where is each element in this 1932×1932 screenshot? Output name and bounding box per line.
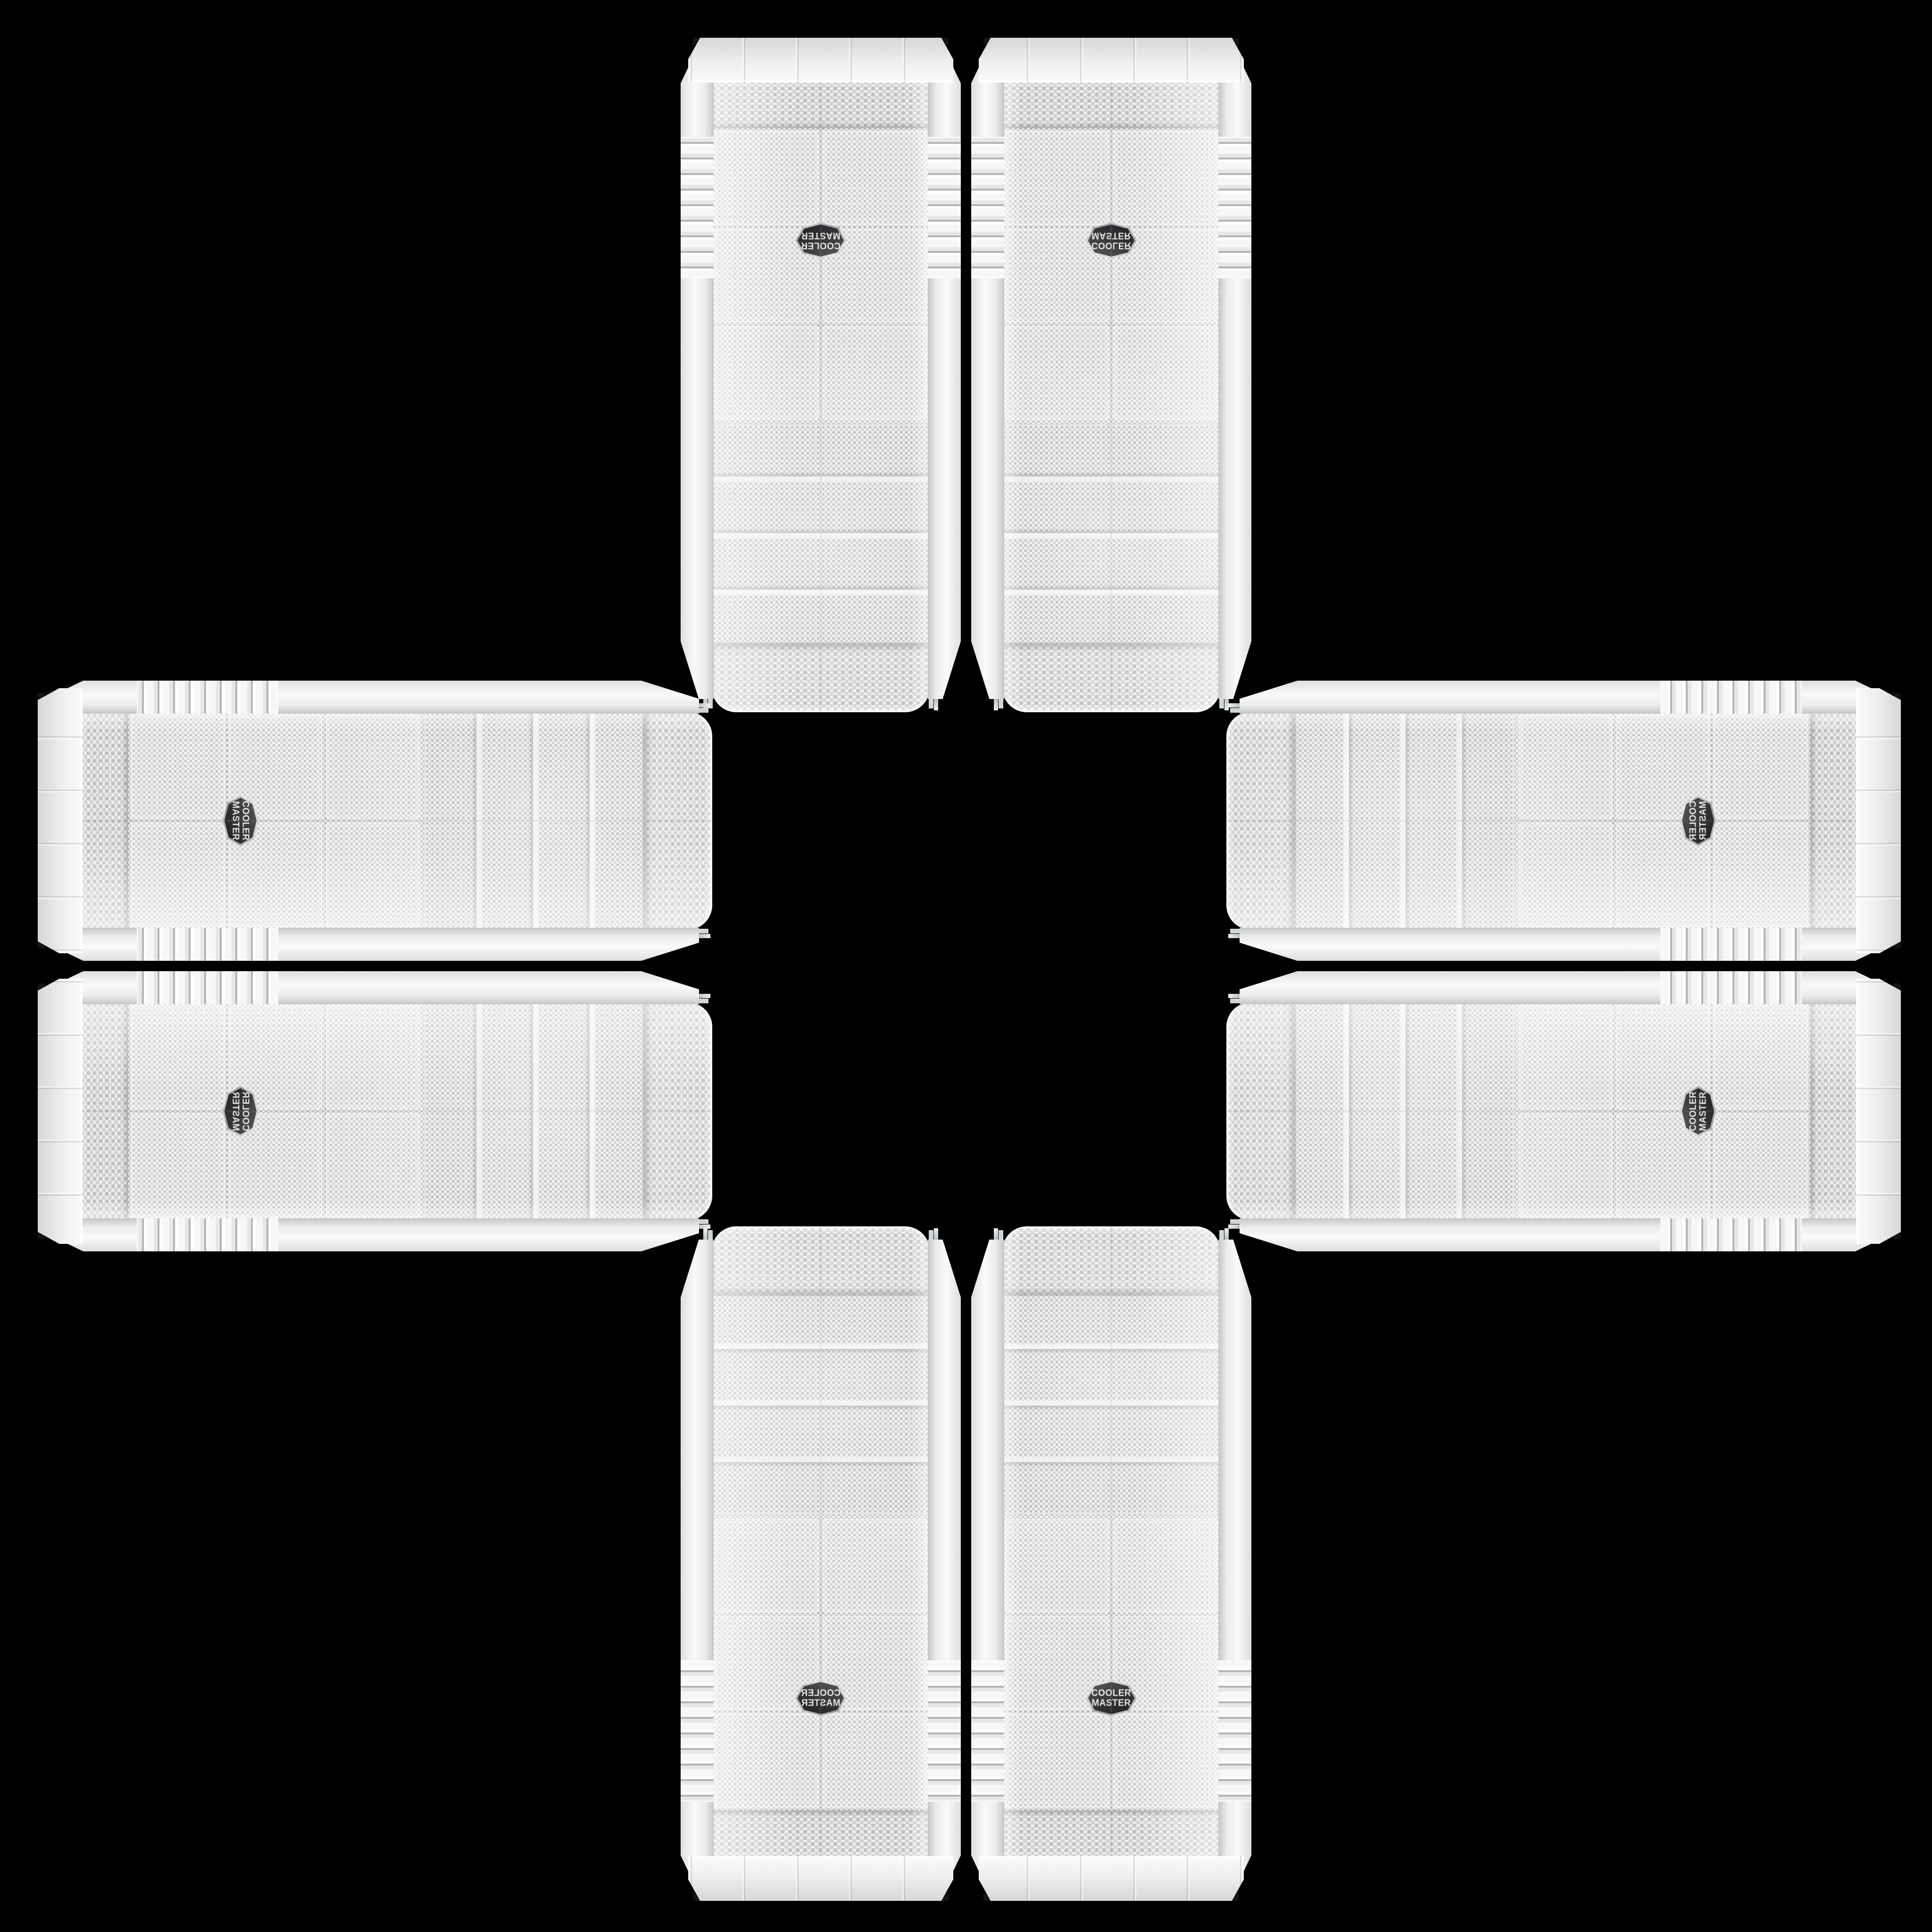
grip-ribs-right (1660, 970, 1802, 1005)
drive-bay-area (425, 712, 646, 930)
brand-text-line2: MASTER (1091, 230, 1131, 241)
drive-bay-slat (594, 712, 646, 930)
drive-bay-slat (1002, 1406, 1220, 1457)
drive-bay-area (712, 425, 930, 646)
side-rail-left (58, 681, 699, 714)
grip-ribs-right (1660, 927, 1802, 962)
front-mesh-panel: COOLER MASTER (712, 80, 930, 712)
drive-bay-slat (538, 712, 590, 930)
bottom-intake-mesh (1810, 712, 1858, 930)
cooler-master-logo: COOLER MASTER (1086, 223, 1136, 258)
top-intake-mesh (712, 1226, 930, 1295)
fan-grid-cell (1519, 1005, 1613, 1109)
side-rail-right (1218, 58, 1251, 699)
grip-ribs-right (680, 137, 715, 278)
fan-grid-cell (714, 131, 819, 225)
drive-bay-slat (712, 481, 930, 533)
drive-bay-slat (1002, 1462, 1220, 1514)
bottom-bezel (979, 38, 1244, 83)
brand-text-line1: COOLER (801, 240, 841, 250)
drive-bay-slat (1002, 1292, 1220, 1344)
cooler-master-logo-face: COOLER MASTER (225, 798, 257, 844)
drive-bay-slat (712, 1462, 930, 1514)
side-rail-left (971, 1240, 1004, 1881)
drive-bay-slat (1406, 712, 1457, 930)
drive-bay-slat (1406, 1002, 1457, 1220)
cooler-master-logo: COOLER MASTER (796, 1680, 846, 1716)
drive-bay-slat (538, 1002, 590, 1220)
fan-grid-cell (1519, 714, 1613, 819)
side-rail-right (1218, 1240, 1251, 1881)
side-rail-right (58, 928, 699, 961)
bottom-intake-mesh (1810, 1002, 1858, 1220)
grip-ribs-right (1217, 137, 1252, 278)
bottom-intake-mesh (712, 1810, 930, 1858)
grip-ribs-right (1217, 1660, 1252, 1802)
fan-grid-cell (714, 1714, 819, 1807)
top-intake-mesh (644, 712, 712, 930)
grip-ribs-left (137, 1217, 278, 1252)
drive-bay-slat (481, 1002, 533, 1220)
drive-bay-slat (1002, 425, 1220, 476)
side-rail-left (1240, 681, 1881, 714)
fan-grid-cell (1005, 326, 1109, 420)
brand-text-line2: MASTER (1091, 1698, 1131, 1708)
side-rail-right (58, 971, 699, 1004)
cooler-master-logo-face: COOLER MASTER (798, 1682, 844, 1714)
bottom-bezel (1856, 979, 1901, 1244)
brand-text-line2: MASTER (230, 801, 241, 840)
fan-grid-cell (131, 714, 225, 819)
fan-grid-cell (326, 823, 420, 927)
front-mesh-panel: COOLER MASTER (1226, 1002, 1858, 1220)
bottom-intake-mesh (80, 1002, 128, 1220)
drive-bay-area (425, 1002, 646, 1220)
brand-text-line2: MASTER (801, 230, 840, 241)
grip-ribs-left (1660, 680, 1802, 715)
cooler-master-logo: COOLER MASTER (796, 223, 846, 258)
cooler-master-logo-face: COOLER MASTER (1088, 1682, 1134, 1714)
fan-intake-grid (714, 131, 927, 420)
pc-case-right-bottom: COOLER MASTER (1226, 971, 1901, 1251)
fan-grid-cell (1113, 1519, 1218, 1613)
top-intake-mesh (1002, 644, 1220, 712)
grip-ribs-left (1660, 1217, 1802, 1252)
cooler-master-logo-face: COOLER MASTER (798, 225, 844, 257)
fan-grid-cell (131, 823, 225, 927)
pc-case-bottom-left: COOLER MASTER (681, 1226, 961, 1901)
fan-grid-cell (326, 1113, 420, 1218)
pc-case-right-top: COOLER MASTER (1226, 681, 1901, 961)
drive-bay-area (1002, 1292, 1220, 1514)
fan-intake-grid (1519, 714, 1807, 927)
cooler-master-logo-face: COOLER MASTER (1682, 798, 1714, 844)
fan-grid-cell (1005, 131, 1109, 225)
drive-bay-slat (1002, 481, 1220, 533)
drive-bay-slat (1002, 538, 1220, 590)
cooler-master-logo: COOLER MASTER (223, 1086, 258, 1136)
grip-ribs-left (137, 680, 278, 715)
fan-grid-cell (1113, 326, 1218, 420)
brand-text-line1: COOLER (1091, 1688, 1131, 1698)
fan-grid-cell (1714, 1005, 1807, 1109)
top-intake-mesh (1226, 1002, 1295, 1220)
side-rail-left (971, 58, 1004, 699)
fan-grid-cell (131, 1005, 225, 1109)
drive-bay-slat (594, 1002, 646, 1220)
pc-case-top-right: COOLER MASTER (971, 38, 1251, 712)
top-intake-mesh (712, 644, 930, 712)
brand-text-line2: MASTER (230, 1091, 241, 1131)
cooler-master-logo: COOLER MASTER (1680, 796, 1716, 846)
cooler-master-logo: COOLER MASTER (1086, 1680, 1136, 1716)
bottom-bezel (979, 1856, 1244, 1901)
drive-bay-slat (712, 594, 930, 646)
bottom-bezel (38, 688, 83, 953)
drive-bay-slat (712, 1292, 930, 1344)
grip-ribs-right (137, 927, 278, 962)
brand-text-line2: MASTER (1698, 1091, 1708, 1131)
drive-bay-slat (1349, 712, 1401, 930)
drive-bay-slat (712, 538, 930, 590)
top-intake-mesh (1226, 712, 1295, 930)
top-intake-mesh (1002, 1226, 1220, 1295)
side-rail-right (1240, 971, 1881, 1004)
cooler-master-logo-face: COOLER MASTER (1682, 1088, 1714, 1134)
bottom-intake-mesh (712, 80, 930, 128)
fan-grid-cell (1005, 1519, 1109, 1613)
fan-grid-cell (1113, 131, 1218, 225)
pc-case-left-top: COOLER MASTER (38, 681, 712, 961)
brand-text-line2: MASTER (801, 1698, 840, 1708)
fan-intake-grid (131, 1005, 420, 1218)
drive-bay-slat (1292, 712, 1344, 930)
cooler-master-logo-face: COOLER MASTER (1088, 225, 1134, 257)
bottom-bezel (688, 1856, 953, 1901)
drive-bay-slat (712, 1406, 930, 1457)
drive-bay-slat (425, 1002, 476, 1220)
fan-grid-cell (1519, 1113, 1613, 1218)
fan-grid-cell (714, 1519, 819, 1613)
fan-grid-cell (1113, 1714, 1218, 1807)
pc-case-left-bottom: COOLER MASTER (38, 971, 712, 1251)
fan-grid-cell (1714, 823, 1807, 927)
fan-grid-cell (1005, 1714, 1109, 1807)
fan-intake-grid (1519, 1005, 1807, 1218)
drive-bay-slat (1349, 1002, 1401, 1220)
drive-bay-slat (712, 1349, 930, 1401)
fan-grid-cell (326, 1005, 420, 1109)
fan-intake-grid (1005, 1519, 1218, 1807)
drive-bay-slat (1462, 712, 1514, 930)
fan-grid-cell (131, 1113, 225, 1218)
fan-grid-cell (823, 1519, 927, 1613)
drive-bay-slat (1462, 1002, 1514, 1220)
front-mesh-panel: COOLER MASTER (80, 1002, 712, 1220)
side-rail-left (928, 58, 961, 699)
side-rail-left (1240, 1218, 1881, 1251)
cooler-master-logo-face: COOLER MASTER (225, 1088, 257, 1134)
side-rail-right (681, 58, 714, 699)
side-rail-right (1240, 928, 1881, 961)
drive-bay-area (712, 1292, 930, 1514)
drive-bay-slat (425, 712, 476, 930)
grip-ribs-right (680, 1660, 715, 1802)
brand-text-line1: COOLER (1688, 801, 1698, 841)
cooler-master-logo: COOLER MASTER (1680, 1086, 1716, 1136)
front-mesh-panel: COOLER MASTER (1226, 712, 1858, 930)
fan-intake-grid (1005, 131, 1218, 420)
fan-grid-cell (823, 326, 927, 420)
fan-grid-cell (1714, 1113, 1807, 1218)
side-rail-left (58, 1218, 699, 1251)
fan-intake-grid (714, 1519, 927, 1807)
side-rail-right (681, 1240, 714, 1881)
fan-grid-cell (1519, 823, 1613, 927)
fan-grid-cell (326, 714, 420, 819)
brand-text-line1: COOLER (240, 801, 250, 841)
brand-text-line1: COOLER (1688, 1091, 1698, 1131)
fan-grid-cell (714, 326, 819, 420)
bottom-intake-mesh (1002, 80, 1220, 128)
bottom-bezel (688, 38, 953, 83)
drive-bay-slat (481, 712, 533, 930)
grip-ribs-left (927, 1660, 962, 1802)
front-mesh-panel: COOLER MASTER (712, 1226, 930, 1858)
fan-intake-grid (131, 714, 420, 927)
fan-grid-cell (823, 1714, 927, 1807)
side-rail-left (928, 1240, 961, 1881)
scene-background: COOLER MASTER COOLER MASTER (0, 0, 1932, 1932)
brand-text-line2: MASTER (1698, 801, 1708, 840)
drive-bay-slat (1002, 1349, 1220, 1401)
brand-text-line1: COOLER (240, 1091, 250, 1131)
bottom-bezel (38, 979, 83, 1244)
drive-bay-slat (1292, 1002, 1344, 1220)
drive-bay-area (1002, 425, 1220, 646)
front-mesh-panel: COOLER MASTER (80, 712, 712, 930)
brand-text-line1: COOLER (801, 1688, 841, 1698)
cooler-master-logo: COOLER MASTER (223, 796, 258, 846)
brand-text-line1: COOLER (1091, 240, 1131, 250)
drive-bay-slat (712, 425, 930, 476)
drive-bay-area (1292, 1002, 1514, 1220)
grip-ribs-left (970, 137, 1005, 278)
grip-ribs-left (927, 137, 962, 278)
front-mesh-panel: COOLER MASTER (1002, 80, 1220, 712)
pc-case-top-left: COOLER MASTER (681, 38, 961, 712)
front-mesh-panel: COOLER MASTER (1002, 1226, 1220, 1858)
grip-ribs-right (137, 970, 278, 1005)
bottom-intake-mesh (80, 712, 128, 930)
pc-case-bottom-right: COOLER MASTER (971, 1226, 1251, 1901)
grip-ribs-left (970, 1660, 1005, 1802)
top-intake-mesh (644, 1002, 712, 1220)
drive-bay-slat (1002, 594, 1220, 646)
bottom-intake-mesh (1002, 1810, 1220, 1858)
fan-grid-cell (823, 131, 927, 225)
bottom-bezel (1856, 688, 1901, 953)
fan-grid-cell (1714, 714, 1807, 819)
drive-bay-area (1292, 712, 1514, 930)
